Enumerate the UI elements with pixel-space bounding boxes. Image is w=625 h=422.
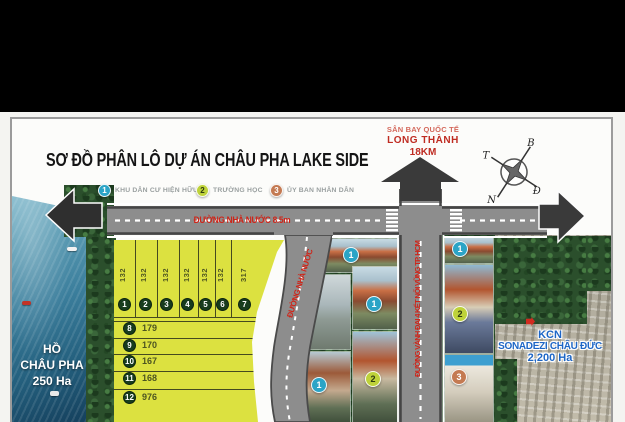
airport-distance: 18KM xyxy=(364,147,482,158)
legend-item-residential: 1 KHU DÂN CƯ HIỆN HỮU xyxy=(98,184,198,197)
residential-marker-icon: 1 xyxy=(311,377,327,393)
main-road-label: ĐƯỜNG NHÀ NƯỚC 8.5m xyxy=(164,215,320,225)
school-marker-icon: 2 xyxy=(365,371,381,387)
page-title: SƠ ĐỒ PHÂN LÔ DỰ ÁN CHÂU PHA LAKE SIDE xyxy=(46,149,311,171)
committee-marker-icon: 3 xyxy=(270,184,283,197)
airport-line1: SÂN BAY QUỐC TẾ xyxy=(364,125,482,134)
compass-south-label: N xyxy=(486,195,497,206)
industrial-zone-label: KCN SONADEZI CHÂU ĐỨC 2,200 Ha xyxy=(480,329,613,364)
school-marker-icon: 2 xyxy=(452,306,468,322)
kcn-area: 2,200 Ha xyxy=(480,352,613,364)
airport-line2: LONG THÀNH xyxy=(364,135,482,146)
committee-marker-icon: 3 xyxy=(451,369,467,385)
legend-label: TRƯỜNG HỌC xyxy=(213,187,263,194)
ring-road-label: ĐƯỜNG VÀNH ĐAI 4 KẾT NỐI VŨNG TP. HCM xyxy=(413,195,428,422)
top-black-bar xyxy=(0,0,625,112)
legend-label: ỦY BAN NHÂN DÂN xyxy=(287,187,354,194)
compass-north-label: B xyxy=(526,138,534,149)
school-marker-icon: 2 xyxy=(196,184,209,197)
residential-marker-icon: 1 xyxy=(98,184,111,197)
residential-marker-icon: 1 xyxy=(452,241,468,257)
legend-label: KHU DÂN CƯ HIỆN HỮU xyxy=(115,187,198,194)
legend-item-school: 2 TRƯỜNG HỌC xyxy=(196,184,263,197)
kcn-line2: SONADEZI CHÂU ĐỨC xyxy=(480,341,613,352)
residential-marker-icon: 1 xyxy=(366,296,382,312)
compass-east-label: Đ xyxy=(532,186,541,197)
left-arrow-icon xyxy=(46,189,102,241)
legend-item-committee: 3 ỦY BAN NHÂN DÂN xyxy=(270,184,354,197)
residential-marker-icon: 1 xyxy=(343,247,359,263)
kcn-line1: KCN xyxy=(480,329,613,341)
project-map: SƠ ĐỒ PHÂN LÔ DỰ ÁN CHÂU PHA LAKE SIDE 1… xyxy=(10,117,613,422)
compass-west-label: T xyxy=(482,150,490,161)
airport-sign: SÂN BAY QUỐC TẾ LONG THÀNH 18KM xyxy=(364,125,482,158)
